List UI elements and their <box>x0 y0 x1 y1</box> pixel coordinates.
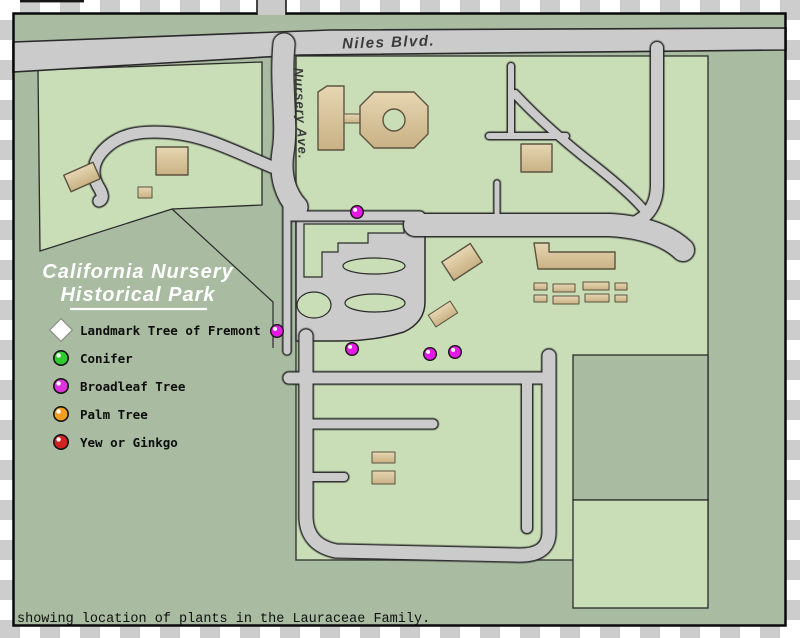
caption-text: showing location of plants in the Laurac… <box>17 612 430 627</box>
building-northeast <box>521 144 552 172</box>
plant-dot[interactable] <box>350 205 364 219</box>
plant-dot[interactable] <box>423 347 437 361</box>
legend-marker-highlight <box>56 409 60 413</box>
plant-dot[interactable] <box>448 345 462 359</box>
park-title-line2: Historical Park <box>60 284 215 306</box>
building-west-square <box>156 147 188 175</box>
legend-label: Broadleaf Tree <box>80 379 186 394</box>
legend-label: Yew or Ginkgo <box>80 435 178 450</box>
legend-item-landmark: Landmark Tree of Fremont <box>50 319 261 342</box>
building-south-2 <box>372 471 395 484</box>
park-title: California Nursery Historical Park <box>42 261 233 309</box>
top-left-line <box>20 0 84 2</box>
plant-dot[interactable] <box>345 342 359 356</box>
park-map: Niles Blvd. Nursery Ave. California Nurs… <box>0 0 800 638</box>
legend-label: Landmark Tree of Fremont <box>80 323 261 338</box>
planting-bed-oval-1 <box>343 258 405 274</box>
legend-marker-ball <box>55 436 68 449</box>
legend-marker-ball <box>55 352 68 365</box>
legend-marker-highlight <box>56 437 60 441</box>
building-south-1 <box>372 452 395 463</box>
page-background: { "map": { "roads": { "niles_label": "Ni… <box>0 0 800 638</box>
legend-label: Conifer <box>80 351 133 366</box>
legend-label: Palm Tree <box>80 407 148 422</box>
building-office-wing <box>318 86 344 150</box>
plaza <box>296 215 425 341</box>
building-west-small <box>138 187 152 198</box>
legend-marker-highlight <box>56 353 60 357</box>
plant-dot[interactable] <box>270 324 284 338</box>
legend-item-conifer: Conifer <box>53 350 133 366</box>
field-sage-patch <box>573 355 708 500</box>
octagon-courtyard <box>383 109 405 131</box>
planting-bed-oval-2 <box>345 294 405 312</box>
planting-bed-round <box>297 292 331 318</box>
nursery-ave-north-stub <box>257 0 286 15</box>
legend-marker-ball <box>55 408 68 421</box>
niles-blvd-label: Niles Blvd. <box>342 32 436 52</box>
field-southeast <box>573 500 708 608</box>
legend-marker-highlight <box>56 381 60 385</box>
legend-marker-ball <box>55 380 68 393</box>
park-title-line1: California Nursery <box>42 261 233 283</box>
